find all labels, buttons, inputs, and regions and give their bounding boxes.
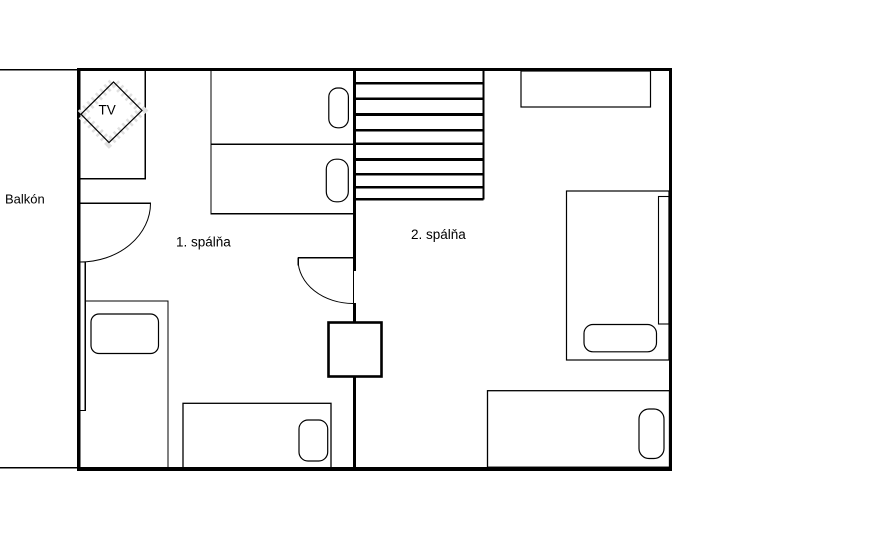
svg-text:1. spálňa: 1. spálňa — [176, 234, 231, 249]
svg-text:TV: TV — [99, 103, 116, 118]
svg-text:2. spálňa: 2. spálňa — [411, 227, 466, 242]
svg-text:Balkón: Balkón — [5, 192, 45, 207]
